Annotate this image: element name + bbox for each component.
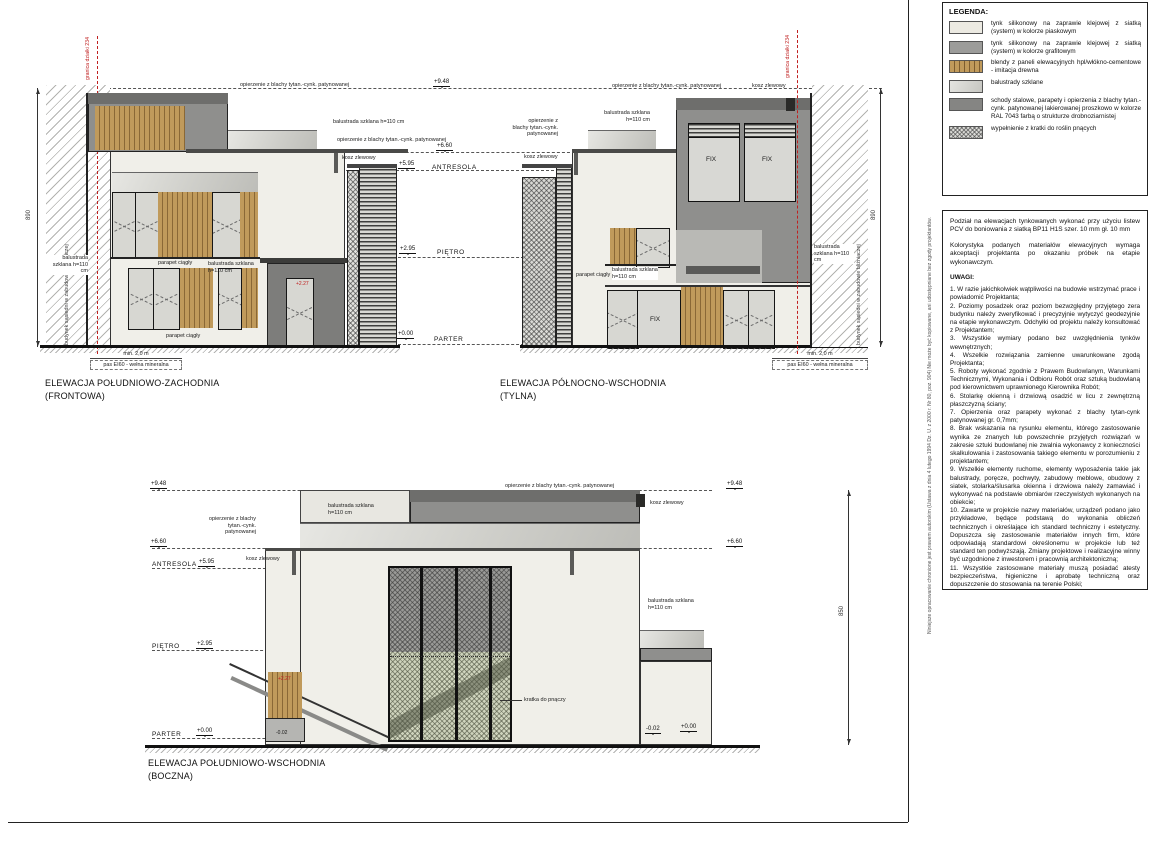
uwagi-note: 8. Brak wskazania na rysunku elementu, k… (950, 425, 1140, 466)
el2-plant-mesh (522, 177, 556, 347)
level-line-000 (398, 344, 524, 345)
el1-sill-label: parapet ciągły (158, 260, 192, 267)
el1-entrance-door (286, 278, 314, 347)
el2-height-dim (880, 88, 881, 347)
el1-balustrade-label: balustrada szklana h=110 cm (333, 119, 404, 126)
el2-loggia (676, 230, 762, 283)
legend-item-text: tynk silikonowy na zaprawie klejowej z s… (991, 40, 1141, 56)
el3-title-line1: ELEWACJA POŁUDNIOWO-WSCHODNIA (148, 757, 325, 770)
el2-tower-cap (522, 164, 572, 168)
el1-boundary-line (97, 36, 98, 354)
el2-pietro-parapet-line (605, 264, 676, 266)
legend-title: LEGENDA: (949, 7, 1141, 16)
el1-door-level-label: +2.27 (296, 281, 309, 287)
el3-trellis-mullion-2 (455, 568, 458, 742)
el2-min-dim-label: min. 2,0 m (772, 351, 868, 359)
el3-660-right: +6.60 (726, 539, 743, 547)
el1-pietro-parapet-line (110, 257, 260, 259)
el1-pietro-window-2 (135, 192, 160, 259)
el3-roof-drain (636, 494, 645, 507)
el2-gutter-label: kosz zlewowy (752, 83, 786, 90)
el3-660-parapet (265, 548, 640, 551)
el3-line-295 (152, 650, 268, 651)
el3-295-left: +2.95 (196, 641, 213, 649)
el1-plant-mesh (347, 170, 359, 347)
el3-flashing-label-2: opierzenie z blachy tytan.-cynk. patynow… (208, 516, 256, 536)
el3-annex-glass (640, 630, 704, 649)
el2-gutter-label-2: kosz zlewowy (524, 154, 558, 161)
el1-pietro-wood-panel (158, 192, 212, 257)
el1-sill-label-2: parapet ciągły (166, 333, 200, 340)
el3-annex-balustrade-label: balustrada szklana h=110 cm (648, 598, 696, 611)
el3-annex-parapet (640, 648, 712, 661)
el2-fix-label-2: FIX (762, 156, 772, 164)
uwagi-note: 5. Roboty wykonać zgodnie z Prawem Budow… (950, 368, 1140, 393)
uwagi-title: UWAGI: (950, 274, 1140, 281)
el2-boundary-line (797, 30, 798, 354)
floor-parter: PARTER (434, 336, 463, 343)
el2-ei60-label: pas EI60 - wełna mineralna (772, 360, 868, 370)
el3-948-right: +9.48 (726, 481, 743, 489)
el3-downpipe-left (292, 551, 296, 575)
uwagi-note: 4. Wszelkie rozwiązania zamienne uwarunk… (950, 352, 1140, 368)
el3-trellis-dotted-line (390, 656, 512, 657)
legend-items: tynk silikonowy na zaprawie klejowej z s… (949, 20, 1141, 139)
level-line-295 (398, 257, 524, 258)
el2-flashing-label-2: opierzenie z blachy tytan.-cynk. patynow… (512, 118, 558, 138)
el3-000-right: +0.00 (680, 724, 697, 732)
el2-parter-wood-panel (681, 287, 723, 347)
el1-flashing-label-2: opierzenie z blachy tytan.-cynk. patynow… (337, 137, 446, 144)
legend-row: balustrady szklane (949, 79, 1141, 93)
el2-title-line1: ELEWACJA PÓŁNOCNO-WSCHODNIA (500, 377, 666, 390)
el1-parter-wood-panel-2 (242, 268, 258, 328)
el1-ei60-label: pas EI60 - wełna mineralna (90, 360, 182, 370)
el1-title-line2: (FRONTOWA) (45, 390, 219, 403)
el2-parter-door-1 (607, 290, 639, 349)
uwagi-note: 2. Poziomy posadzek oraz poziom bezwzglę… (950, 303, 1140, 336)
el3-roof-parapet-top (410, 490, 640, 502)
legend-swatch (949, 60, 983, 73)
uwagi-note: 9. Wszelkie elementy ruchome, elementy w… (950, 466, 1140, 507)
el1-top-parapet (88, 93, 228, 104)
el3-flashing-label: opierzenie z blachy tytan.-cynk. patynow… (505, 483, 614, 490)
el2-title: ELEWACJA PÓŁNOCNO-WSCHODNIA (TYLNA) (500, 377, 666, 402)
el2-660-parapet (572, 149, 676, 153)
el1-balustrade-label-3: balustrada szklana h=110 cm (46, 255, 88, 275)
el1-flashing-label: opierzenie z blachy tytan.-cynk. patynow… (240, 82, 349, 89)
el2-boundary-label: granica działki 234 (786, 32, 792, 78)
legend-item-text: wypełnienie z kratki do roślin pnących (991, 125, 1141, 133)
notes-paragraph-1: Podział na elewacjach tynkowanych wykona… (950, 218, 1140, 235)
level-595-label: +5.95 (398, 161, 415, 169)
el3-660-left: +6.60 (150, 539, 167, 547)
level-660-label: +6.60 (436, 143, 453, 151)
copyright-vertical-text: Niniejsze opracowanie chronione jest pra… (927, 217, 933, 634)
el3-pietro: PIĘTRO (152, 643, 180, 650)
el3-gutter-label: kosz zlewowy (650, 500, 684, 507)
legend-item-text: balustrady szklane (991, 79, 1141, 87)
el1-top-wood-panel (95, 106, 185, 150)
legend-row: schody stalowe, parapety i opierzenia z … (949, 97, 1141, 121)
el1-pietro-wood-panel-2 (240, 192, 258, 257)
el3-parter: PARTER (152, 731, 181, 738)
floor-pietro: PIĘTRO (437, 249, 465, 256)
el2-balustrade-label-3: balustrada szklana h=110 cm (814, 244, 854, 264)
uwagi-note: 11. Wszystkie zastosowane materiały musz… (950, 565, 1140, 590)
notes-paragraph-2: Kolorystyka podanych materiałów elewacyj… (950, 242, 1140, 267)
legend-row: tynk silikonowy na zaprawie klejowej z s… (949, 40, 1141, 56)
el1-downpipe (334, 153, 338, 173)
uwagi-note: 7. Opierzenia oraz parapety wykonać z bl… (950, 409, 1140, 425)
el3-trellis-leader (500, 700, 522, 701)
legend-swatch (949, 80, 983, 93)
el1-height-dim (37, 88, 38, 347)
el1-pietro-window-3 (212, 192, 242, 259)
el3-base-level-label: -0.02 (276, 730, 287, 736)
el3-m002-right: -0.02 (645, 726, 661, 734)
el3-trellis-mullion-1 (420, 568, 423, 742)
floor-antresola: ANTRESOLA (432, 164, 477, 171)
el2-fix-window-2 (744, 137, 796, 202)
el2-stair-louver (556, 164, 572, 347)
el2-fix-label-3: FIX (650, 316, 660, 324)
el2-balustrade-label-2: balustrada szklana h=110 cm (612, 267, 658, 280)
legend-row: blendy z paneli elewacyjnych hpl/włókno-… (949, 59, 1141, 75)
el1-title-line1: ELEWACJA POŁUDNIOWO-ZACHODNIA (45, 377, 219, 390)
el2-roof-drain (786, 98, 795, 111)
legend-row: tynk silikonowy na zaprawie klejowej z s… (949, 20, 1141, 36)
el3-height-dim (848, 490, 849, 745)
el2-firewall-line (810, 93, 812, 347)
uwagi-note: 12. Szczegóły wykończenia wewnętrznego: … (950, 589, 1140, 590)
el3-roof-glass-balustrade (300, 523, 640, 549)
el2-fix-label-1: FIX (706, 156, 716, 164)
el3-plant-trellis (388, 566, 512, 742)
el1-parter-window-3 (218, 268, 242, 330)
el2-pietro-window (636, 228, 670, 268)
el2-loggia-balustrade (686, 266, 760, 274)
el3-trellis-green-tint (390, 652, 512, 742)
el1-gutter-label: kosz zlewowy (342, 155, 376, 162)
legend-panel: LEGENDA: tynk silikonowy na zaprawie kle… (942, 2, 1148, 196)
el1-entrance-canopy (260, 258, 350, 263)
el1-660-parapet (186, 149, 408, 153)
el2-fix-window-1 (688, 137, 740, 202)
el3-trellis-mullion-3 (489, 568, 492, 742)
frame-bottom-line (8, 822, 908, 823)
level-295-label: +2.95 (399, 246, 416, 254)
legend-item-text: blendy z paneli elewacyjnych hpl/włókno-… (991, 59, 1141, 75)
uwagi-list: 1. W razie jakichkolwiek wątpliwości na … (950, 286, 1140, 590)
legend-item-text: schody stalowe, parapety i opierzenia z … (991, 97, 1141, 121)
drawing-sheet: +9.48 +6.60 +5.95 ANTRESOLA +2.95 PIĘTRO… (0, 0, 1157, 852)
el1-parter-window-2 (153, 268, 180, 330)
el1-pietro-glass-balustrade (112, 172, 258, 193)
el2-balustrade-label: balustrada szklana h=110 cm (598, 110, 650, 123)
el1-parter-window-1 (128, 268, 155, 330)
el3-227-label: +2.27 (278, 676, 291, 682)
el1-tower-cap (347, 164, 397, 168)
legend-item-text: tynk silikonowy na zaprawie klejowej z s… (991, 20, 1141, 36)
notes-panel: Podział na elewacjach tynkowanych wykona… (942, 210, 1148, 590)
el3-antresola: ANTRESOLA (152, 561, 197, 568)
el3-000-left: +0.00 (196, 728, 213, 736)
el3-downpipe-mid (570, 551, 574, 575)
legend-swatch (949, 21, 983, 34)
uwagi-note: 1. W razie jakichkolwiek wątpliwości na … (950, 286, 1140, 302)
el2-neighbour-label: budynek sąsiedni w zabudowie bliźniaczej (856, 244, 862, 345)
uwagi-note: 10. Zawarte w projekcie nazwy materiałów… (950, 507, 1140, 564)
el3-title-line2: (BOCZNA) (148, 770, 325, 783)
uwagi-note: 6. Stolarkę okienną i drzwiową osadzić w… (950, 393, 1140, 409)
el2-sill-label: parapet ciągły (576, 272, 610, 279)
el3-948-left: +9.48 (150, 481, 167, 489)
el2-height-dim-label: 890 (871, 210, 877, 220)
el1-height-dim-label: 890 (26, 210, 32, 220)
el3-595-left: +5.95 (198, 559, 215, 567)
el1-firebreak-dim: min. 2,0 m pas EI60 - wełna mineralna (90, 351, 182, 370)
uwagi-note: 3. Wszystkie wymiary podano bez uwzględn… (950, 335, 1140, 351)
legend-swatch (949, 41, 983, 54)
el1-parter-wood-panel (180, 268, 213, 328)
level-000-label: +0.00 (397, 331, 414, 339)
el3-trellis-label: kratka do pnączy (524, 697, 566, 704)
el1-pietro-window-1 (112, 192, 137, 259)
el2-title-line2: (TYLNA) (500, 390, 666, 403)
legend-swatch (949, 126, 983, 139)
el3-gutter-label-2: kosz zlewowy (246, 556, 280, 563)
el2-parter-door-2 (723, 290, 750, 349)
legend-row: wypełnienie z kratki do roślin pnących (949, 125, 1141, 139)
el2-pietro-wood-panel (610, 228, 636, 266)
level-948-label: +9.48 (433, 79, 450, 87)
el2-firebreak-dim: min. 2,0 m pas EI60 - wełna mineralna (772, 351, 868, 370)
el1-boundary-label: granica działki 234 (86, 34, 92, 80)
el3-title: ELEWACJA POŁUDNIOWO-WSCHODNIA (BOCZNA) (148, 757, 325, 782)
legend-swatch (949, 98, 983, 111)
el1-min-dim-label: min. 2,0 m (90, 351, 182, 359)
el2-downpipe (574, 153, 578, 175)
frame-right-line (908, 0, 909, 822)
el1-balustrade-label-2: balustrada szklana h=110 cm (208, 261, 256, 274)
el1-title: ELEWACJA POŁUDNIOWO-ZACHODNIA (FRONTOWA) (45, 377, 219, 402)
el2-parter-door-3 (748, 290, 775, 349)
el3-balustrade-label: balustrada szklana h=110 cm (328, 503, 380, 516)
el2-flashing-label: opierzenie z blachy tytan.-cynk. patynow… (612, 83, 721, 90)
el1-stair-louver (359, 164, 397, 347)
el3-height-dim-label: 850 (839, 606, 845, 616)
el3-ground-hatch (145, 748, 760, 753)
